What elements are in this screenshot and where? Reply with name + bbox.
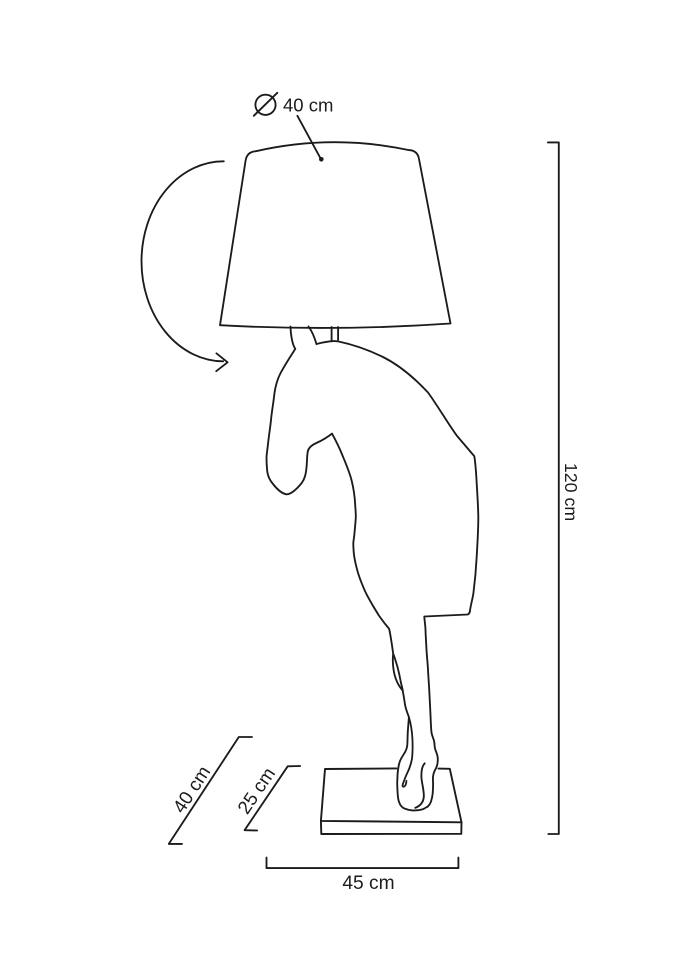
- svg-text:120 cm: 120 cm: [561, 463, 581, 521]
- svg-text:40 cm: 40 cm: [283, 95, 333, 116]
- svg-text:45 cm: 45 cm: [342, 873, 394, 894]
